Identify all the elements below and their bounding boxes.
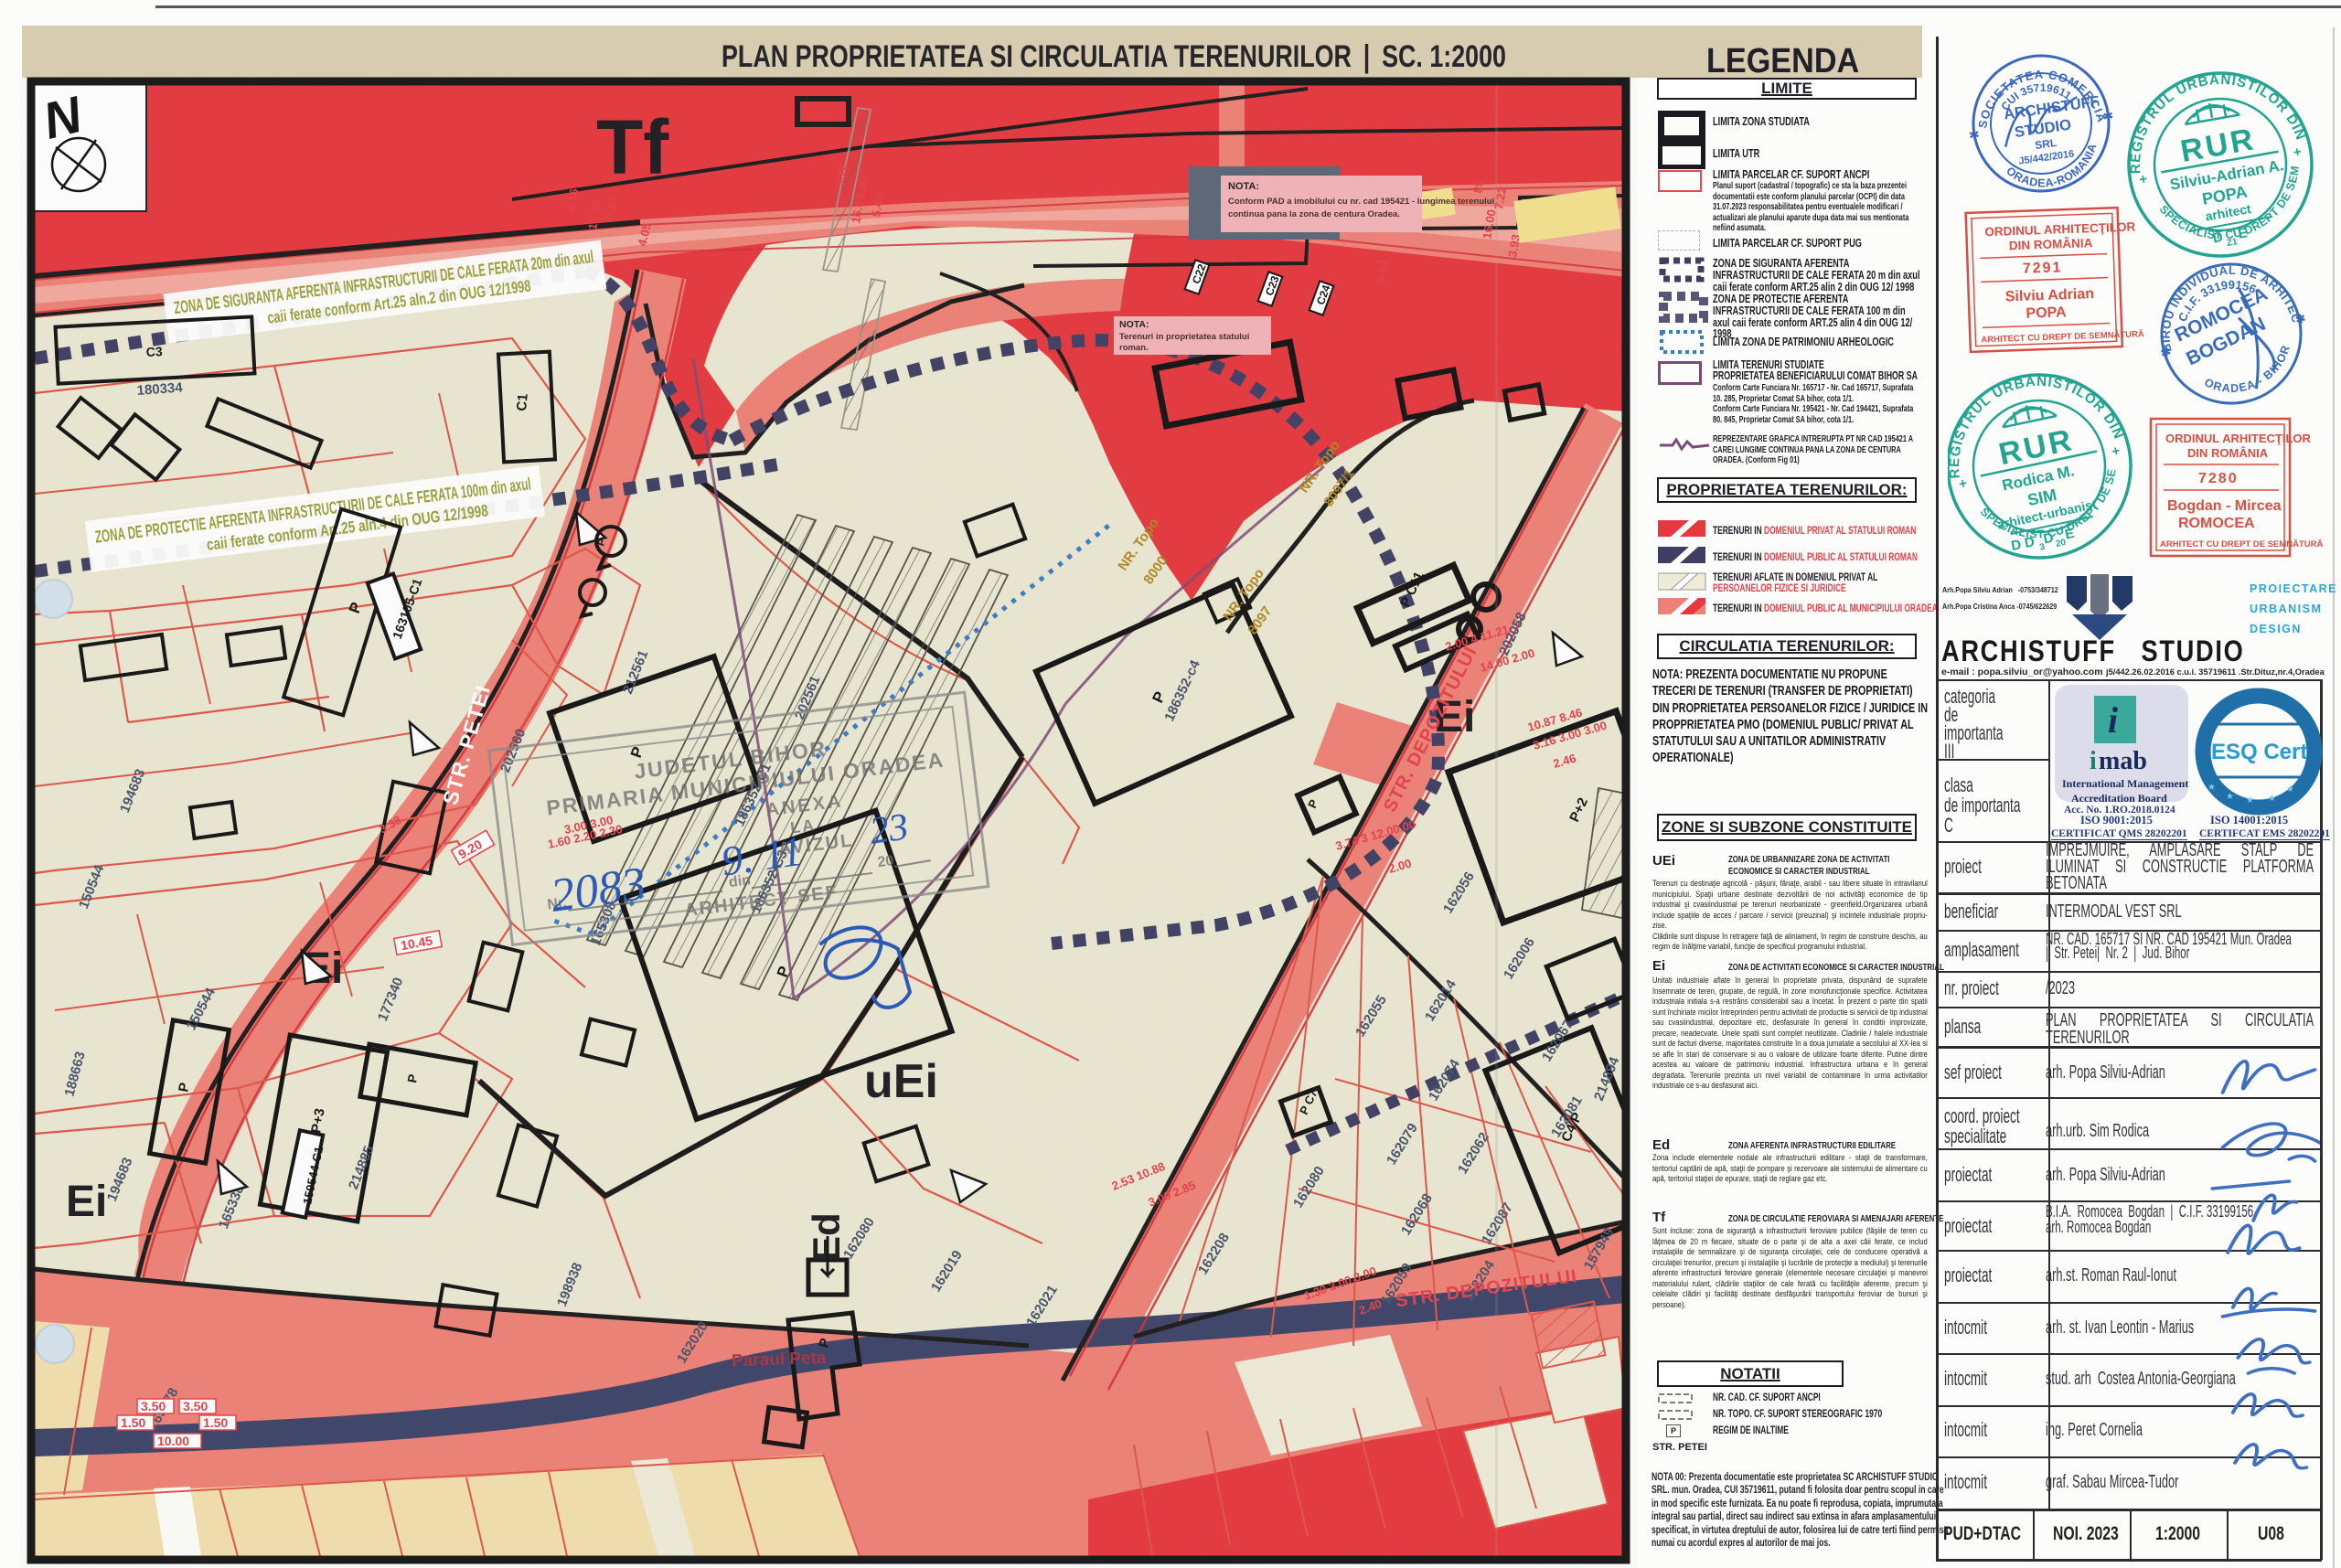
svg-text:i: i bbox=[2090, 747, 2097, 775]
svg-text:★: ★ bbox=[2207, 783, 2216, 793]
svg-text:Z1: Z1 bbox=[2226, 237, 2239, 249]
svg-text:+: + bbox=[1958, 475, 1969, 492]
svg-text:ARHITECT CU DREPT DE SEMNĂTURĂ: ARHITECT CU DREPT DE SEMNĂTURĂ bbox=[2160, 539, 2324, 549]
svg-text:i: i bbox=[2108, 699, 2118, 741]
svg-text:POPA: POPA bbox=[2026, 304, 2067, 322]
svg-text:✱: ✱ bbox=[1968, 127, 1981, 143]
svg-text:+: + bbox=[2138, 171, 2149, 187]
svg-text:★: ★ bbox=[2286, 784, 2294, 795]
svg-text:DIN ROMÂNIA: DIN ROMÂNIA bbox=[2009, 236, 2093, 252]
svg-text:ESQ Cert: ESQ Cert bbox=[2211, 740, 2307, 764]
svg-text:Silviu Adrian: Silviu Adrian bbox=[2005, 286, 2095, 304]
svg-text:7291: 7291 bbox=[2022, 260, 2062, 277]
svg-text:SRL: SRL bbox=[2034, 136, 2058, 152]
svg-text:D D: D D bbox=[2010, 534, 2036, 554]
svg-text:★: ★ bbox=[2226, 792, 2234, 802]
svg-text:International Management: International Management bbox=[2062, 777, 2188, 790]
svg-text:DIN ROMÂNIA: DIN ROMÂNIA bbox=[2187, 446, 2269, 460]
svg-text:+: + bbox=[2293, 144, 2304, 160]
svg-text:✱: ✱ bbox=[2294, 311, 2307, 326]
svg-text:J5/442/2016: J5/442/2016 bbox=[2018, 148, 2075, 166]
svg-text:★: ★ bbox=[2246, 795, 2254, 805]
svg-text:7280: 7280 bbox=[2198, 471, 2239, 486]
svg-text:ORDINUL ARHITECŢILOR: ORDINUL ARHITECŢILOR bbox=[2165, 432, 2311, 445]
svg-text:★: ★ bbox=[2268, 794, 2276, 804]
svg-text:ROMOCEA: ROMOCEA bbox=[2178, 516, 2255, 531]
svg-text:✱: ✱ bbox=[2102, 108, 2115, 123]
svg-text:Accreditation Board: Accreditation Board bbox=[2071, 792, 2167, 805]
svg-text:mab: mab bbox=[2099, 747, 2147, 775]
svg-text:Bogdan - Mircea: Bogdan - Mircea bbox=[2167, 498, 2282, 514]
svg-text:+: + bbox=[2111, 443, 2122, 459]
